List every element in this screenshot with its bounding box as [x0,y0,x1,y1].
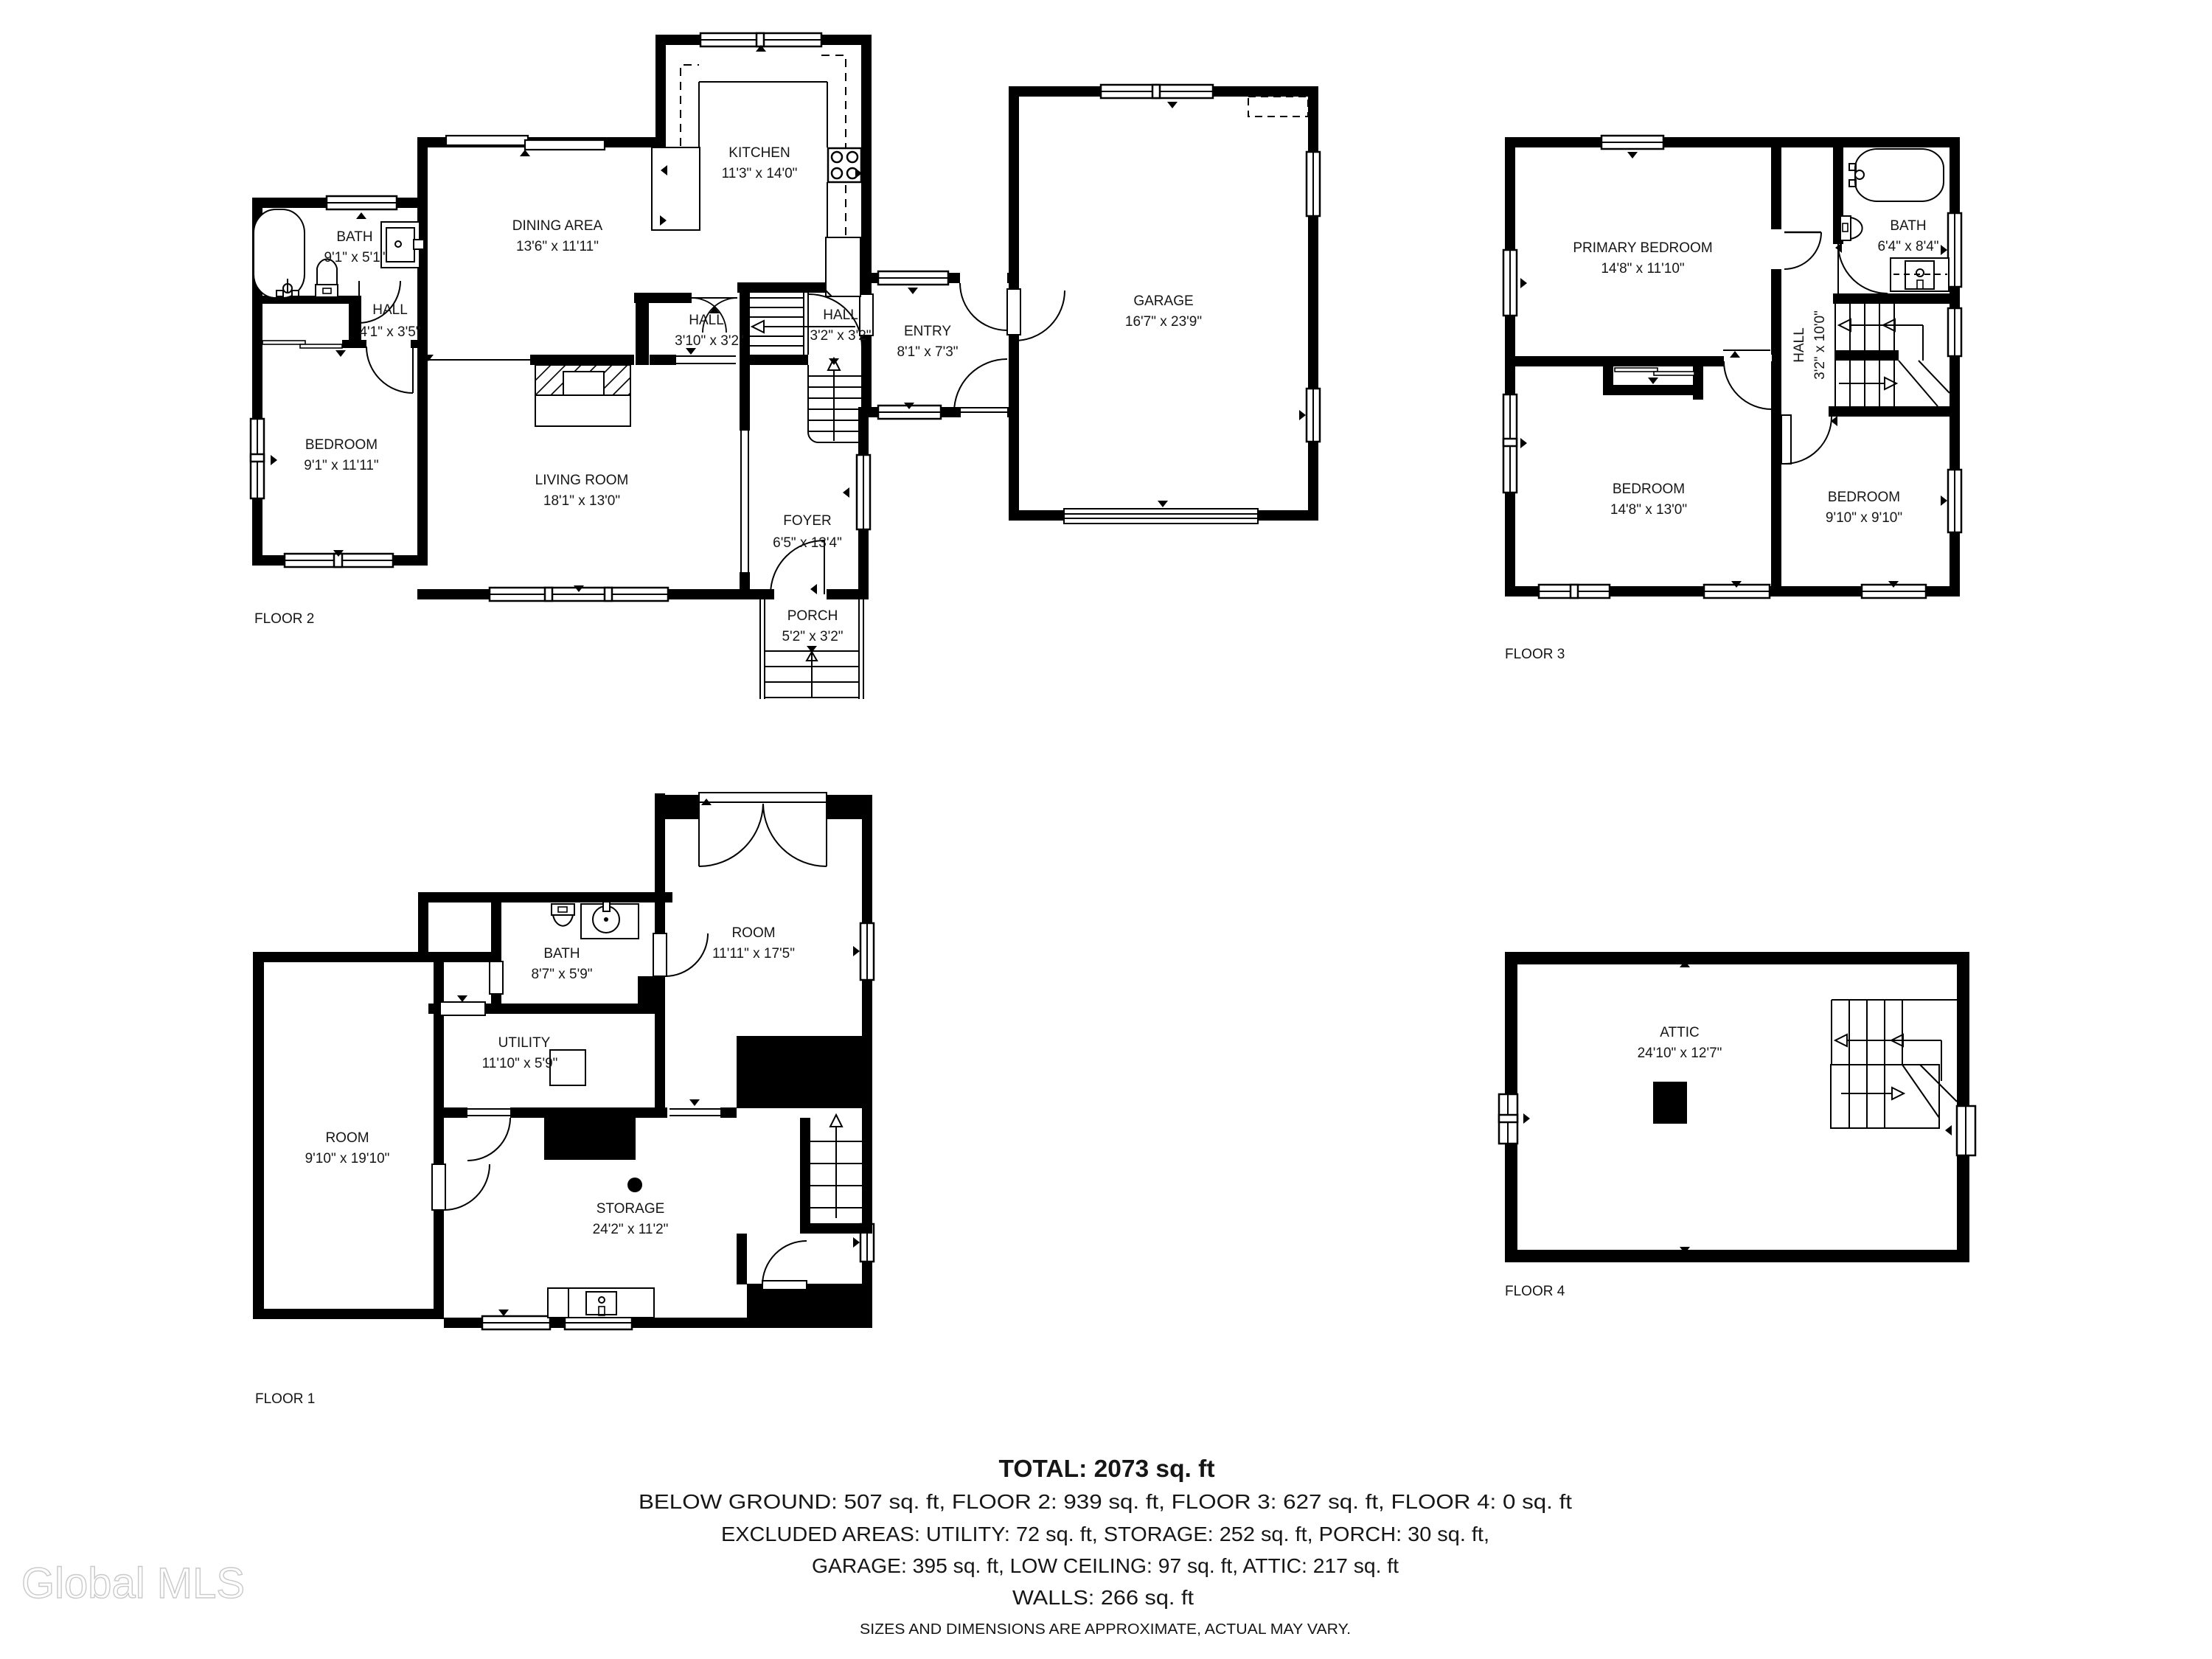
svg-text:ENTRY: ENTRY [904,324,951,339]
svg-text:9'1" x 5'1": 9'1" x 5'1" [324,250,385,265]
svg-text:11'11" x 17'5": 11'11" x 17'5" [712,946,795,961]
svg-text:13'6" x 11'11": 13'6" x 11'11" [516,239,599,254]
svg-text:PORCH: PORCH [787,608,838,624]
svg-text:11'3" x 14'0": 11'3" x 14'0" [722,166,798,181]
svg-text:ATTIC: ATTIC [1660,1025,1699,1040]
svg-text:24'10" x 12'7": 24'10" x 12'7" [1638,1046,1722,1061]
svg-text:GARAGE: GARAGE [1133,293,1193,309]
svg-text:ROOM: ROOM [731,925,775,941]
svg-text:BEDROOM: BEDROOM [1613,481,1685,497]
svg-text:8'7" x 5'9": 8'7" x 5'9" [531,967,592,982]
svg-text:DINING AREA: DINING AREA [512,218,603,234]
svg-text:BEDROOM: BEDROOM [305,437,378,453]
svg-text:11'10" x 5'9": 11'10" x 5'9" [482,1056,558,1071]
svg-text:UTILITY: UTILITY [498,1035,551,1051]
svg-text:GARAGE: 395 sq. ft, LOW CEILIN: GARAGE: 395 sq. ft, LOW CEILING: 97 sq. … [812,1554,1399,1577]
svg-text:9'10" x 9'10": 9'10" x 9'10" [1826,510,1902,526]
svg-text:9'10" x 19'10": 9'10" x 19'10" [305,1151,390,1166]
svg-text:TOTAL: 2073 sq. ft: TOTAL: 2073 sq. ft [999,1455,1215,1482]
svg-text:PRIMARY BEDROOM: PRIMARY BEDROOM [1573,240,1712,256]
svg-text:HALL: HALL [372,302,408,318]
svg-text:WALLS: 266 sq. ft: WALLS: 266 sq. ft [1012,1586,1194,1609]
svg-text:3'2" x 3'2": 3'2" x 3'2" [810,328,871,344]
svg-text:3'10" x 3'2": 3'10" x 3'2" [675,333,744,349]
svg-text:SIZES AND DIMENSIONS ARE APPRO: SIZES AND DIMENSIONS ARE APPROXIMATE, AC… [860,1621,1351,1638]
svg-text:FLOOR 3: FLOOR 3 [1505,647,1565,662]
svg-text:HALL: HALL [823,307,858,323]
svg-text:BEDROOM: BEDROOM [1828,490,1900,505]
svg-text:4'1" x 3'5": 4'1" x 3'5" [359,324,420,340]
svg-text:HALL: HALL [1792,327,1807,363]
svg-text:14'8" x 11'10": 14'8" x 11'10" [1601,261,1684,276]
svg-text:ROOM: ROOM [325,1130,369,1146]
svg-text:LIVING ROOM: LIVING ROOM [535,473,629,488]
svg-text:18'1" x 13'0": 18'1" x 13'0" [543,493,620,509]
svg-text:3'2" x 10'0": 3'2" x 10'0" [1812,310,1828,380]
svg-text:KITCHEN: KITCHEN [728,145,790,161]
svg-text:24'2" x 11'2": 24'2" x 11'2" [593,1222,669,1237]
svg-text:FLOOR 1: FLOOR 1 [255,1391,315,1407]
svg-text:BELOW GROUND: 507 sq. ft, FLOO: BELOW GROUND: 507 sq. ft, FLOOR 2: 939 s… [639,1490,1572,1513]
svg-text:BATH: BATH [336,229,372,245]
svg-text:9'1" x 11'11": 9'1" x 11'11" [304,458,378,473]
svg-text:HALL: HALL [689,313,724,328]
svg-text:FOYER: FOYER [783,513,831,529]
svg-text:FLOOR 4: FLOOR 4 [1505,1284,1565,1299]
svg-text:BATH: BATH [1890,218,1926,234]
svg-text:STORAGE: STORAGE [597,1201,665,1217]
svg-text:16'7" x 23'9": 16'7" x 23'9" [1125,314,1202,330]
svg-text:5'2" x 3'2": 5'2" x 3'2" [782,629,843,644]
svg-text:Global MLS: Global MLS [21,1559,245,1607]
svg-text:8'1" x 7'3": 8'1" x 7'3" [897,344,958,360]
svg-text:14'8" x 13'0": 14'8" x 13'0" [1610,502,1687,518]
svg-text:BATH: BATH [543,946,580,961]
svg-text:FLOOR 2: FLOOR 2 [254,611,314,627]
svg-text:6'5" x 13'4": 6'5" x 13'4" [773,535,842,551]
svg-text:EXCLUDED AREAS: UTILITY: 72 sq: EXCLUDED AREAS: UTILITY: 72 sq. ft, STOR… [721,1523,1489,1545]
svg-text:6'4" x 8'4": 6'4" x 8'4" [1877,239,1938,254]
